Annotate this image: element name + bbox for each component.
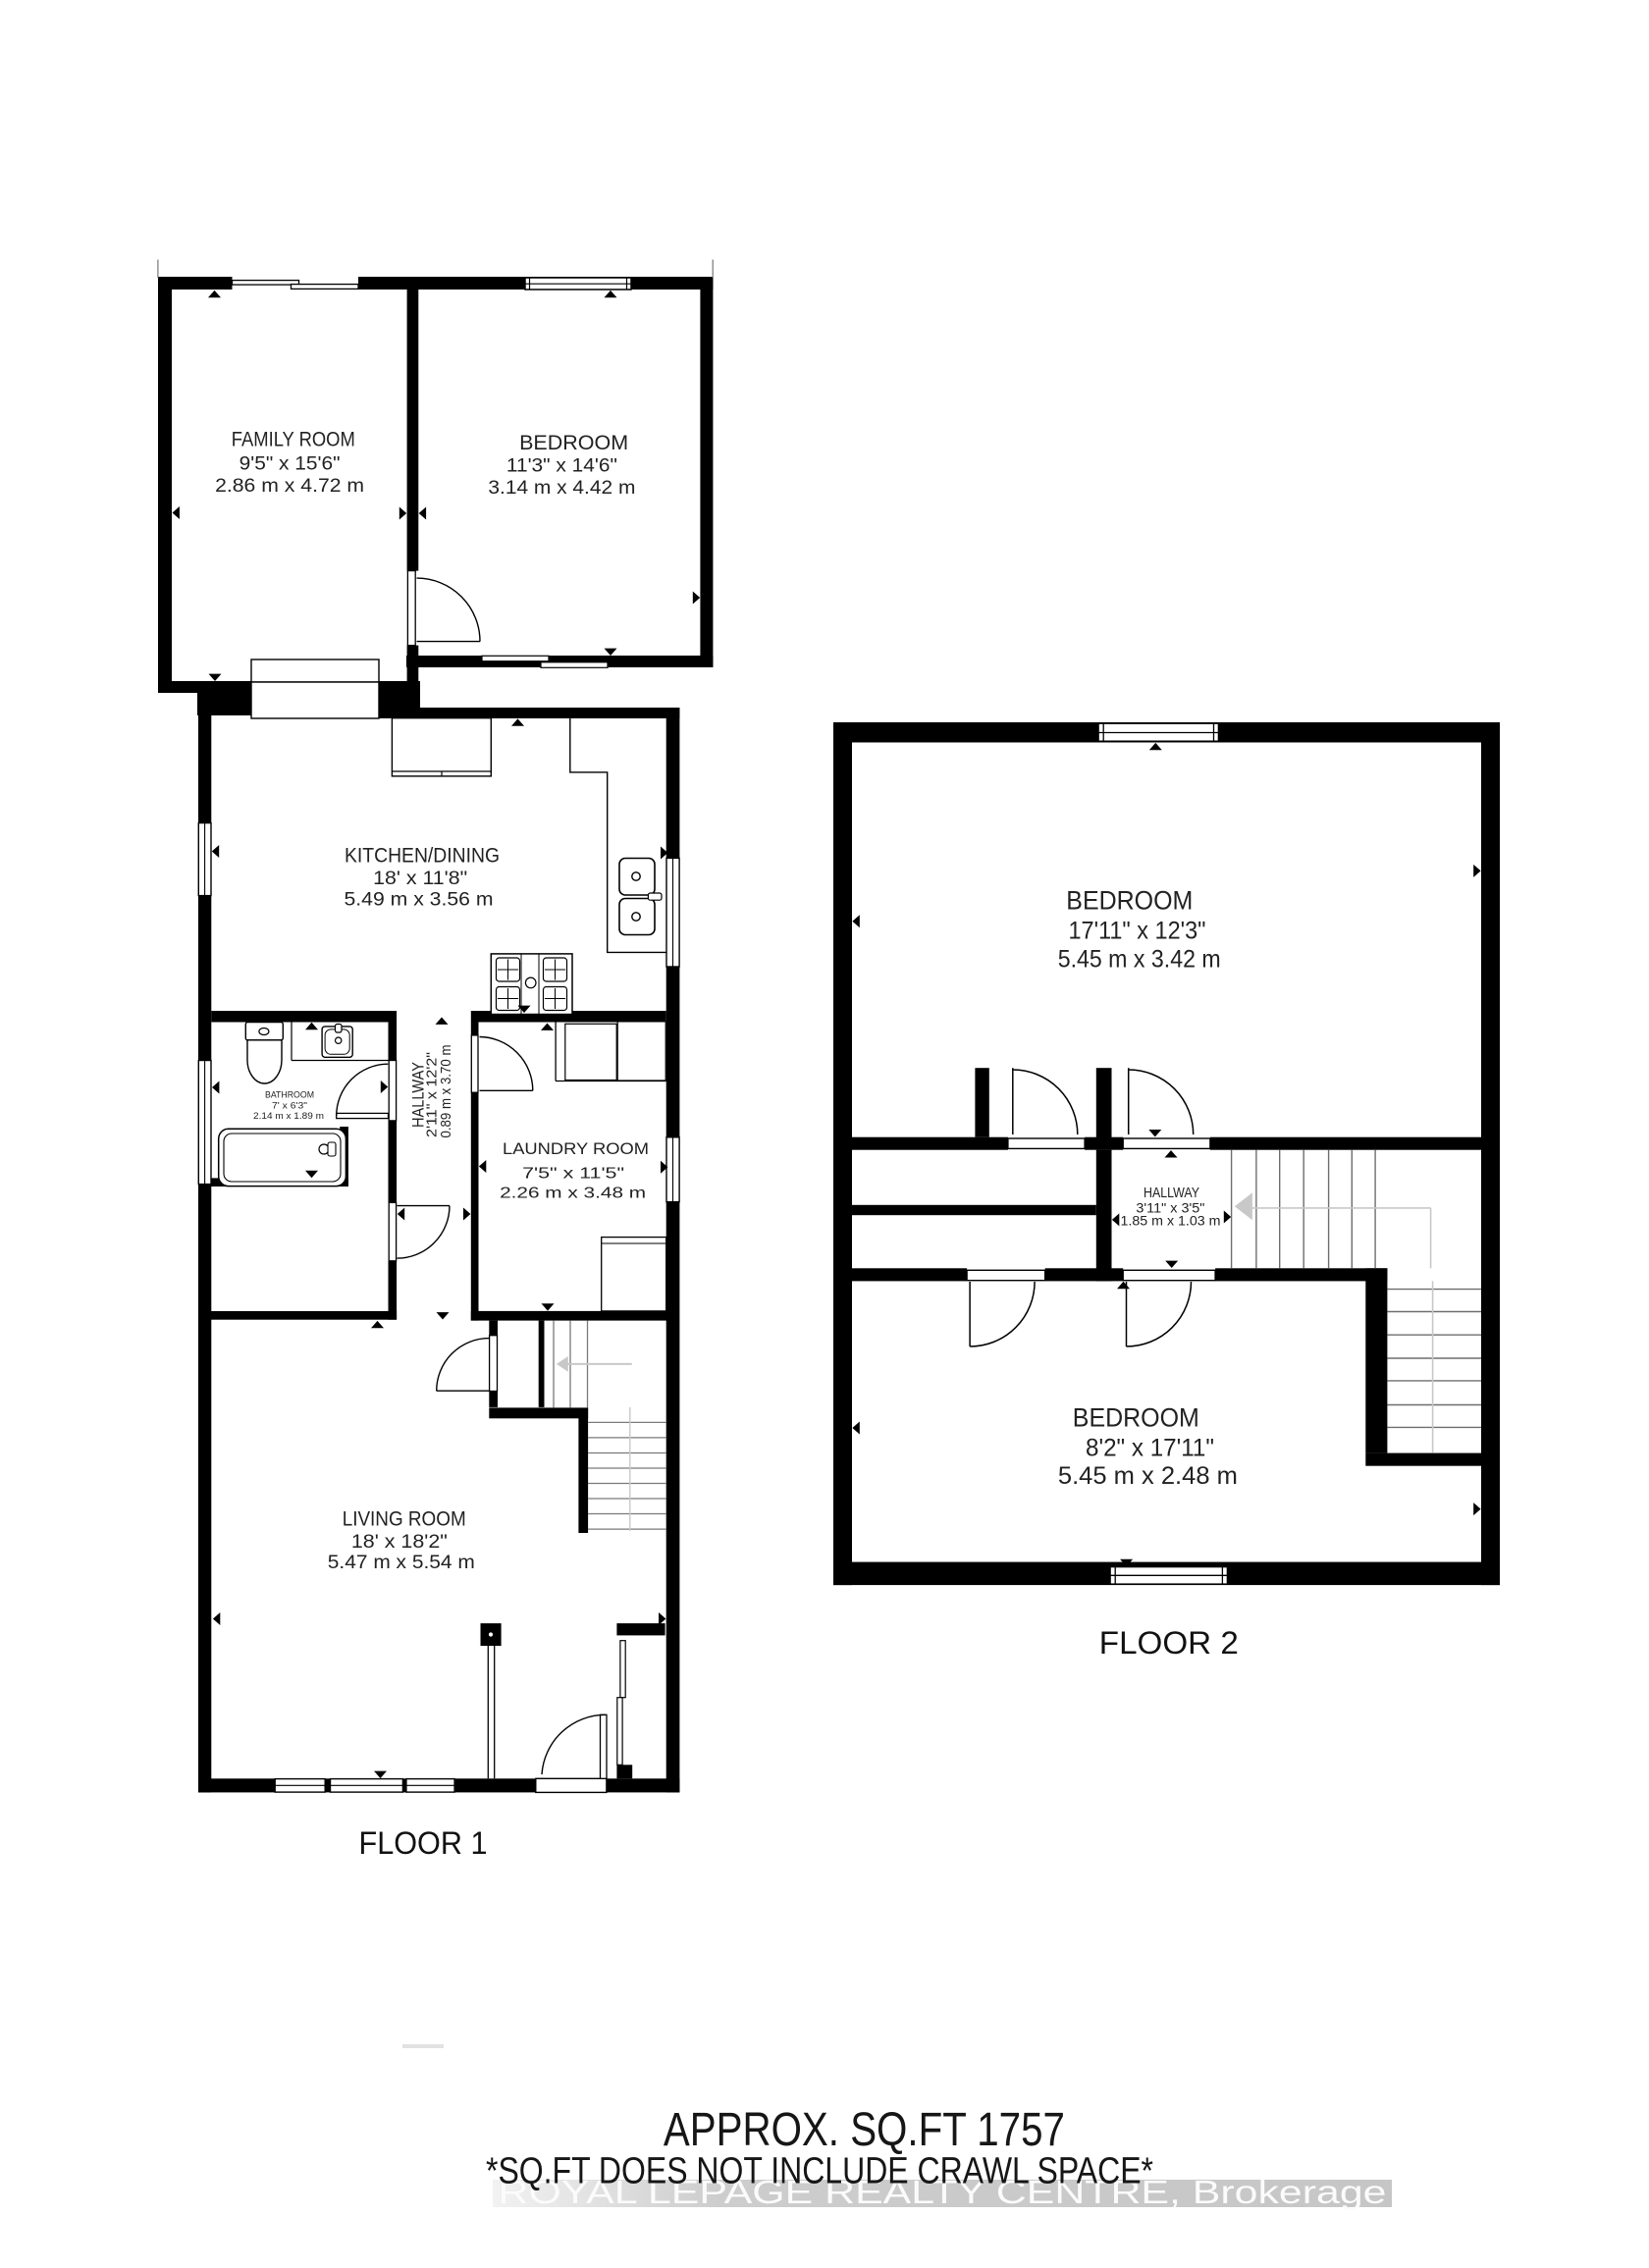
svg-text:HALLWAY: HALLWAY [1144, 1186, 1199, 1201]
svg-text:7' x 6'3": 7' x 6'3" [272, 1101, 307, 1111]
svg-text:BEDROOM: BEDROOM [1073, 1403, 1199, 1433]
svg-text:BEDROOM: BEDROOM [1066, 886, 1193, 916]
svg-text:*SQ.FT DOES NOT INCLUDE CRAWL: *SQ.FT DOES NOT INCLUDE CRAWL SPACE* [486, 2151, 1153, 2192]
svg-text:8'2" x 17'11": 8'2" x 17'11" [1086, 1435, 1214, 1462]
svg-text:11'3" x 14'6": 11'3" x 14'6" [506, 455, 617, 477]
svg-text:3.14 m x 4.42 m: 3.14 m x 4.42 m [488, 477, 635, 499]
svg-text:17'11" x 12'3": 17'11" x 12'3" [1069, 918, 1206, 945]
svg-text:2.86 m x 4.72 m: 2.86 m x 4.72 m [215, 475, 364, 497]
svg-text:5.47 m x 5.54 m: 5.47 m x 5.54 m [328, 1552, 475, 1573]
svg-text:FLOOR 1: FLOOR 1 [359, 1825, 488, 1861]
svg-text:2.26 m x 3.48 m: 2.26 m x 3.48 m [500, 1186, 646, 1202]
svg-text:FLOOR 2: FLOOR 2 [1099, 1625, 1239, 1661]
svg-text:5.45 m x 3.42 m: 5.45 m x 3.42 m [1058, 946, 1221, 974]
svg-text:5.45 m x 2.48 m: 5.45 m x 2.48 m [1058, 1462, 1238, 1490]
svg-text:0.89 m x 3.70 m: 0.89 m x 3.70 m [438, 1045, 454, 1138]
svg-text:LAUNDRY ROOM: LAUNDRY ROOM [503, 1140, 649, 1158]
svg-text:2.14 m x 1.89 m: 2.14 m x 1.89 m [253, 1111, 324, 1121]
svg-text:7'5" x 11'5": 7'5" x 11'5" [522, 1165, 624, 1182]
svg-text:FAMILY ROOM: FAMILY ROOM [232, 428, 355, 451]
svg-text:5.49 m x 3.56 m: 5.49 m x 3.56 m [345, 889, 494, 911]
svg-text:KITCHEN/DINING: KITCHEN/DINING [345, 843, 500, 867]
svg-text:LIVING ROOM: LIVING ROOM [343, 1507, 466, 1531]
svg-text:BATHROOM: BATHROOM [265, 1090, 314, 1101]
svg-text:9'5" x 15'6": 9'5" x 15'6" [239, 453, 341, 475]
svg-text:18' x 18'2": 18' x 18'2" [351, 1531, 448, 1553]
svg-text:APPROX. SQ.FT 1757: APPROX. SQ.FT 1757 [664, 2104, 1065, 2156]
svg-text:1.85 m x 1.03 m: 1.85 m x 1.03 m [1121, 1214, 1221, 1229]
svg-text:BEDROOM: BEDROOM [519, 431, 628, 454]
svg-text:18' x 11'8": 18' x 11'8" [373, 868, 467, 889]
